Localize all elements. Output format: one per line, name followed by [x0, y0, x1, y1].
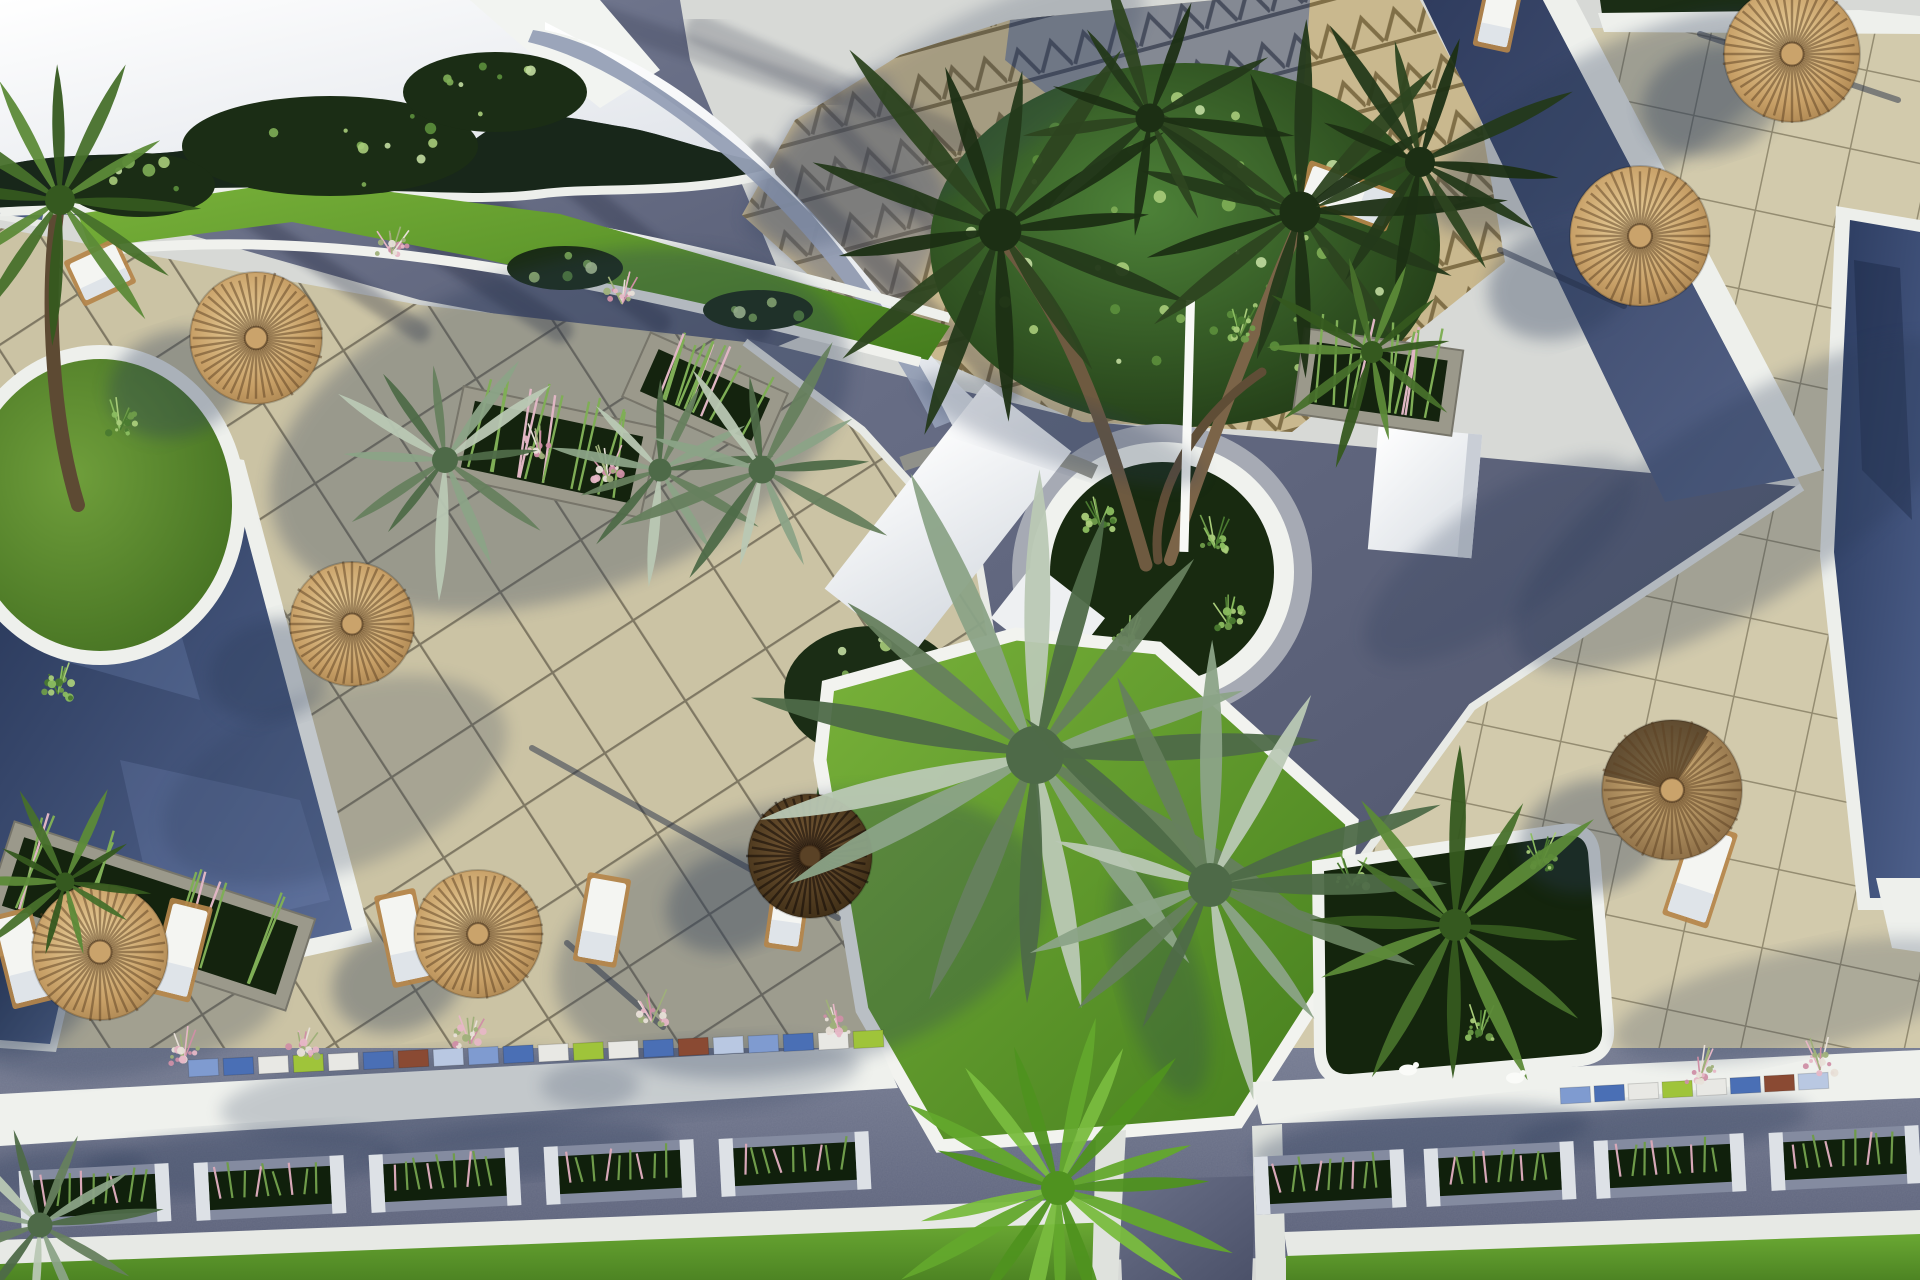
mosaic-tile: [328, 1052, 359, 1071]
mosaic-tile: [713, 1036, 744, 1055]
aerial-resort-render: [0, 0, 1920, 1280]
mosaic-tile: [363, 1051, 394, 1070]
thatch-umbrella: [190, 272, 323, 404]
roadside-planter: [719, 1131, 872, 1197]
thatch-umbrella: [1570, 166, 1710, 306]
mosaic-tile: [1594, 1084, 1625, 1102]
roadside-planter: [1424, 1141, 1577, 1207]
mosaic-tile: [503, 1045, 534, 1064]
mosaic-tile: [433, 1048, 464, 1067]
mosaic-tile: [188, 1058, 219, 1077]
render-canvas: [0, 0, 1920, 1280]
roadside-planter: [1254, 1149, 1407, 1215]
mosaic-tile: [1628, 1082, 1659, 1100]
mosaic-tile: [1560, 1086, 1591, 1104]
mosaic-tile: [818, 1031, 849, 1050]
mosaic-tile: [223, 1057, 254, 1076]
mosaic-tile: [643, 1039, 674, 1058]
roadside-planter: [544, 1139, 697, 1205]
mosaic-tile: [398, 1049, 429, 1068]
mosaic-tile: [573, 1042, 604, 1061]
mosaic-tile: [608, 1040, 639, 1059]
mosaic-tile: [678, 1037, 709, 1056]
mosaic-tile: [853, 1030, 884, 1049]
mosaic-tile: [1798, 1072, 1829, 1090]
roadside-planter: [194, 1155, 347, 1221]
mosaic-tile: [783, 1033, 814, 1052]
mosaic-tile: [468, 1046, 499, 1065]
mosaic-tile: [538, 1043, 569, 1062]
roadside-planter: [1769, 1125, 1920, 1191]
hedge-bush: [403, 52, 587, 132]
mosaic-tile: [1764, 1074, 1795, 1092]
roadside-planter: [1594, 1133, 1747, 1199]
thatch-umbrella: [289, 561, 415, 686]
mosaic-tile: [258, 1055, 289, 1074]
fork-path: [1118, 1176, 1256, 1280]
roadside-planter: [369, 1147, 522, 1213]
thatch-umbrella: [414, 870, 543, 999]
mosaic-tile: [748, 1034, 779, 1053]
mosaic-tile: [1730, 1076, 1761, 1094]
